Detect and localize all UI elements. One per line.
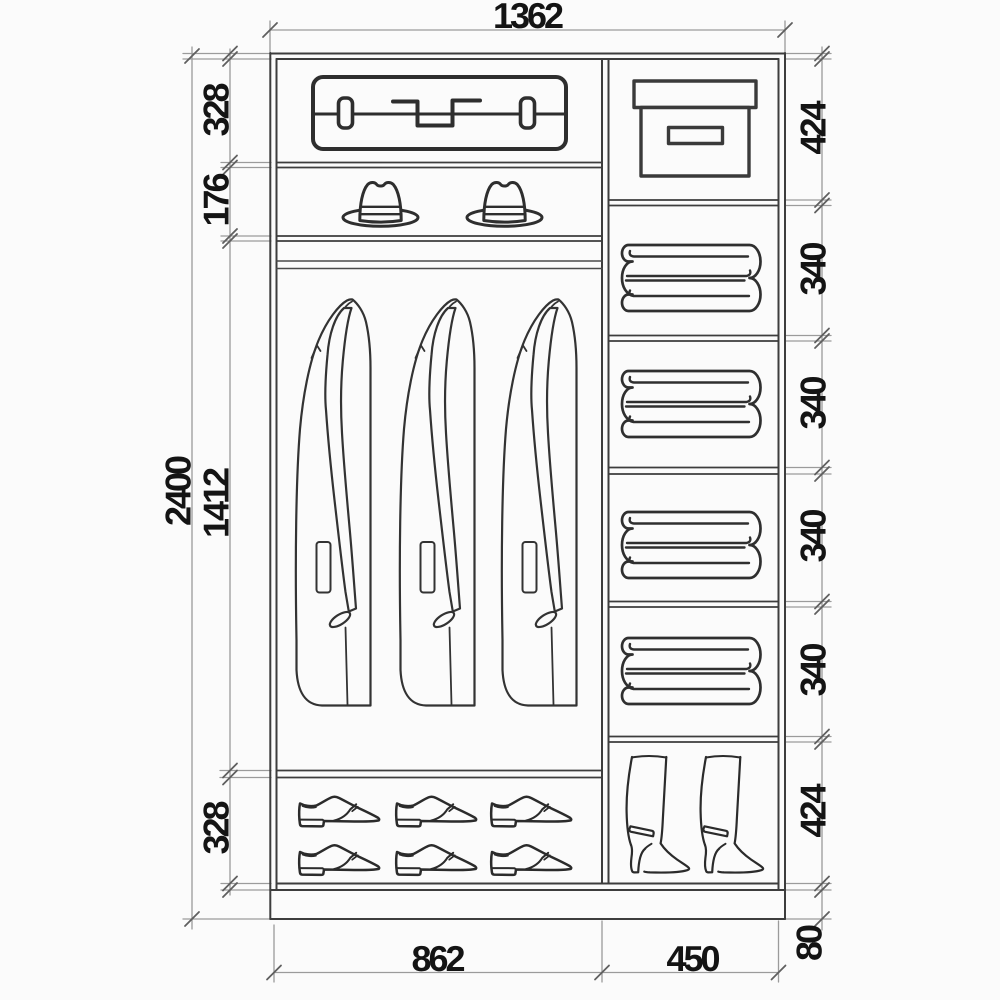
svg-text:176: 176 [196,173,237,226]
svg-text:1362: 1362 [493,0,563,36]
svg-text:424: 424 [793,783,834,837]
svg-text:450: 450 [666,938,719,979]
svg-text:424: 424 [793,100,834,154]
svg-text:2400: 2400 [158,456,199,526]
svg-text:328: 328 [196,801,237,854]
svg-text:340: 340 [793,509,834,562]
svg-text:340: 340 [793,643,834,696]
svg-text:862: 862 [411,938,464,979]
svg-text:1412: 1412 [196,468,237,538]
svg-text:328: 328 [196,83,237,136]
svg-text:340: 340 [793,242,834,295]
svg-text:80: 80 [789,925,830,961]
svg-text:340: 340 [793,376,834,429]
